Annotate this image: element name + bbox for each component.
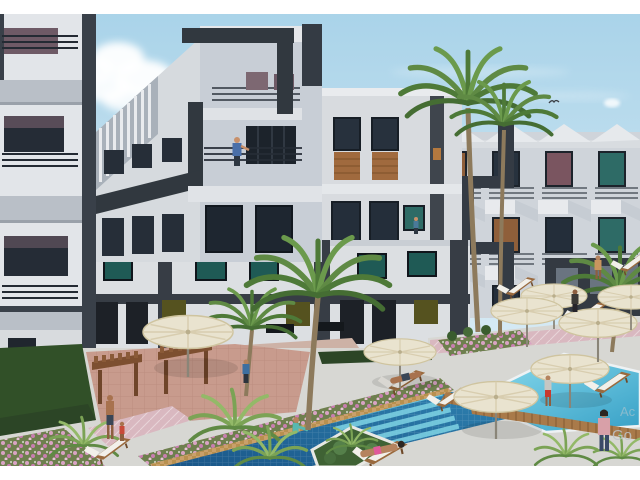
frame-top <box>0 0 640 14</box>
middle-building <box>318 88 462 260</box>
person-small-kid <box>120 422 125 441</box>
architectural-render: Ac Go <box>0 0 640 480</box>
watermark-line1: Ac <box>620 404 636 419</box>
person-middle-balcony <box>414 217 419 234</box>
watermark-line2: Go <box>612 427 632 444</box>
middle-building-dark-strip <box>430 96 444 260</box>
small-cloud <box>604 99 620 108</box>
render-canvas: Ac Go <box>0 0 640 480</box>
frame-bottom <box>0 466 640 480</box>
courtyard-bench <box>318 322 344 331</box>
